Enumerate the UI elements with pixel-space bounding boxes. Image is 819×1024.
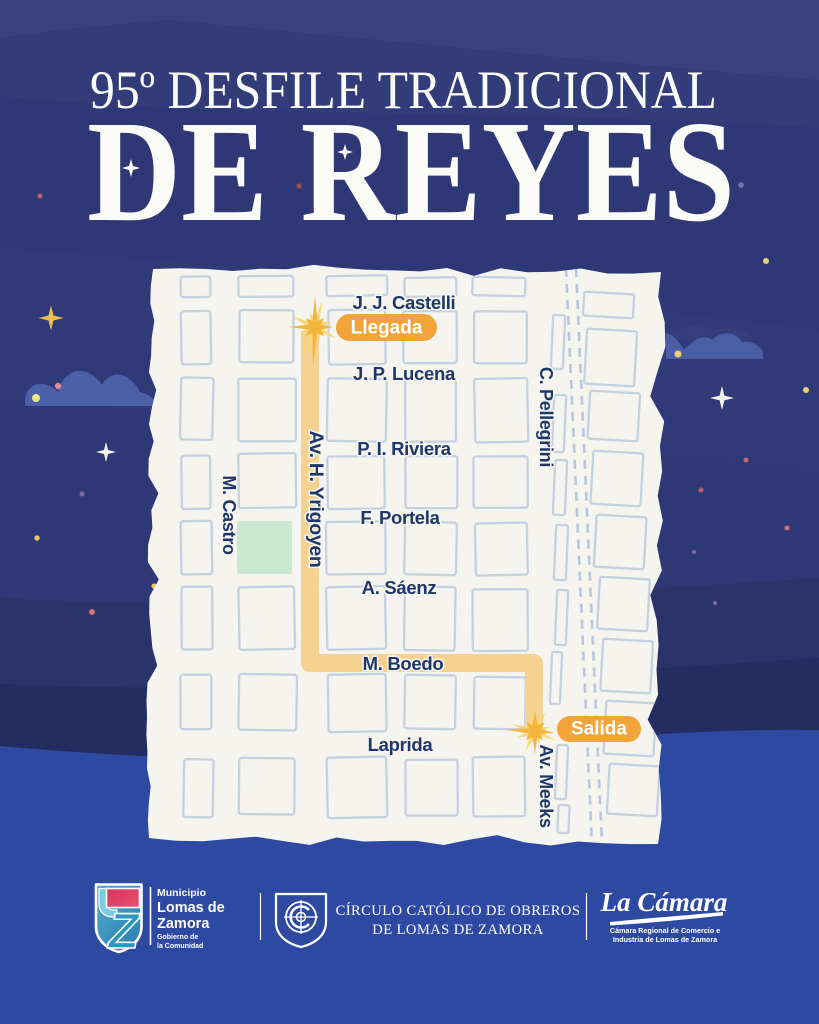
svg-text:Salida: Salida [571, 719, 627, 740]
svg-text:C. Pellegrini: C. Pellegrini [536, 367, 556, 467]
svg-text:A. Sáenz: A. Sáenz [362, 577, 437, 598]
svg-text:DE LOMAS DE ZAMORA: DE LOMAS DE ZAMORA [372, 922, 543, 938]
svg-text:La Cámara: La Cámara [600, 887, 728, 917]
svg-text:CÍRCULO CATÓLICO DE OBREROS: CÍRCULO CATÓLICO DE OBREROS [336, 902, 581, 919]
svg-text:J. P. Lucena: J. P. Lucena [353, 363, 456, 384]
svg-text:J. J. Castelli: J. J. Castelli [353, 292, 456, 313]
svg-text:Av. H. Yrigoyen: Av. H. Yrigoyen [305, 430, 327, 567]
svg-text:Zamora: Zamora [157, 916, 210, 932]
svg-text:Municipio: Municipio [157, 887, 206, 899]
svg-text:M. Boedo: M. Boedo [363, 653, 444, 674]
svg-text:la Comunidad: la Comunidad [157, 943, 203, 950]
svg-text:Llegada: Llegada [351, 318, 423, 339]
svg-text:P. I. Riviera: P. I. Riviera [357, 438, 451, 459]
svg-text:M. Castro: M. Castro [219, 475, 239, 555]
svg-text:Cámara Regional de Comercio e: Cámara Regional de Comercio e [610, 926, 720, 935]
svg-text:Gobierno de: Gobierno de [157, 934, 198, 941]
svg-text:Laprida: Laprida [368, 734, 434, 755]
svg-text:Industria de Lomas de Zamora: Industria de Lomas de Zamora [613, 935, 718, 944]
svg-text:DE REYES: DE REYES [87, 92, 735, 252]
svg-text:Lomas de: Lomas de [157, 900, 225, 916]
svg-text:Av. Meeks: Av. Meeks [536, 744, 556, 828]
svg-text:F. Portela: F. Portela [360, 507, 440, 528]
